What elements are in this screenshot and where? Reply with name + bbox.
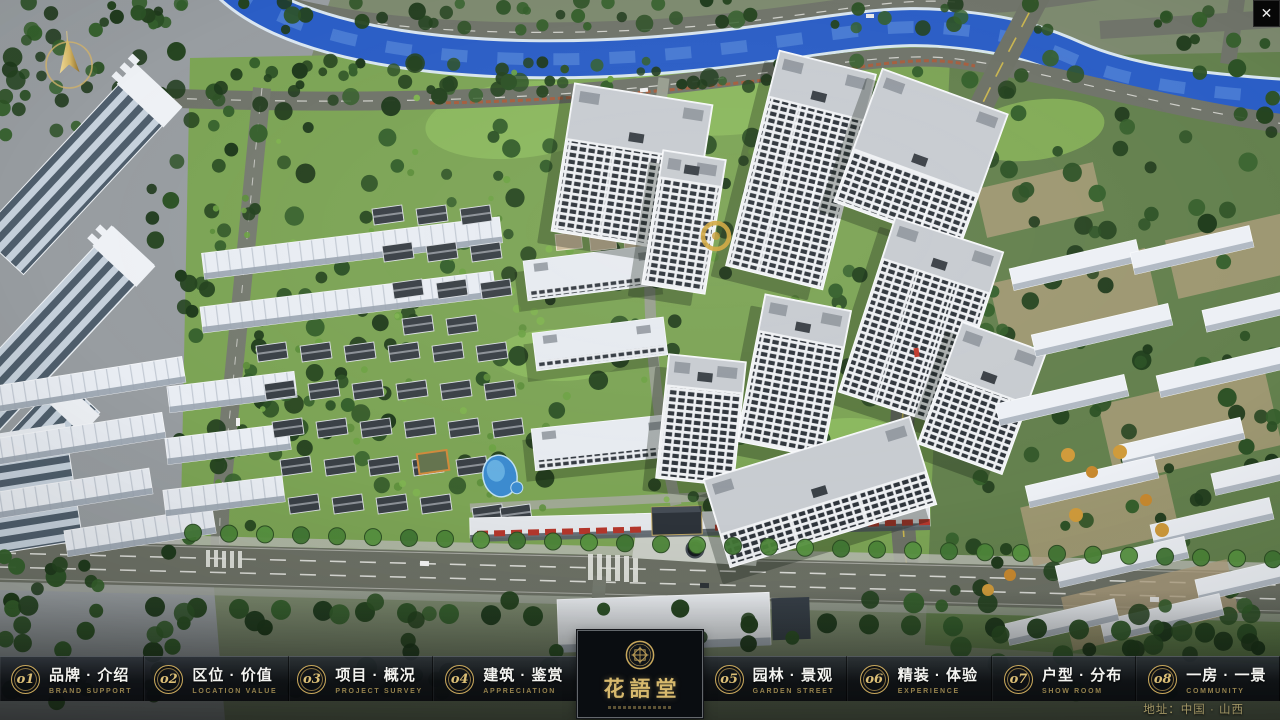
nav-item-brand-intro[interactable]: o1 品牌 · 介绍BRAND SUPPORT [0, 656, 144, 701]
nav-label-en: BRAND SUPPORT [49, 688, 132, 695]
logo-subtext-line [608, 706, 672, 709]
nav-number-badge: o1 [11, 665, 40, 694]
nav-number: o2 [160, 672, 178, 687]
nav-label-en: SHOW ROOM [1042, 688, 1103, 695]
nav-item-location-value[interactable]: o2 区位 · 价值LOCATION VALUE [144, 656, 288, 701]
close-button[interactable]: ✕ [1253, 0, 1280, 27]
garden-pavilion [417, 450, 449, 474]
nav-item-floorplans[interactable]: o7 户型 · 分布SHOW ROOM [992, 656, 1136, 701]
nav-number: o1 [17, 672, 35, 687]
aerial-masterplan-render [0, 0, 1280, 720]
seal-icon [625, 640, 655, 670]
nav-number: o3 [303, 672, 321, 687]
nav-item-landscape[interactable]: o5 园林 · 景观GARDEN STREET [703, 656, 847, 701]
nav-number: o6 [865, 672, 883, 687]
nav-label-en: APPRECIATION [483, 688, 556, 695]
nav-item-project-overview[interactable]: o3 项目 · 概况PROJECT SURVEY [289, 656, 433, 701]
nav-label-zh: 建筑 · 鉴赏 [483, 664, 563, 685]
nav-label-zh: 区位 · 价值 [192, 664, 272, 685]
nav-label-zh: 园林 · 景观 [753, 664, 833, 685]
nav-label-zh: 精装 · 体验 [898, 664, 978, 685]
close-icon: ✕ [1261, 7, 1273, 21]
nav-item-interior-experience[interactable]: o6 精装 · 体验EXPERIENCE [847, 656, 991, 701]
nav-number-badge: o3 [297, 665, 326, 694]
nav-number-badge: o7 [1004, 665, 1033, 694]
nav-label-zh: 项目 · 概况 [335, 664, 415, 685]
nav-number: o7 [1010, 672, 1028, 687]
nav-label-en: PROJECT SURVEY [335, 688, 422, 695]
sales-presentation-screen: ✕ o1 品牌 · 介绍BRAND SUPPORT o2 区位 · 价值LOCA… [0, 0, 1280, 720]
nav-group-left: o1 品牌 · 介绍BRAND SUPPORT o2 区位 · 价值LOCATI… [0, 656, 577, 701]
nav-number-badge: o8 [1148, 665, 1177, 694]
nav-label-en: EXPERIENCE [898, 688, 960, 695]
logo-panel[interactable]: 花語堂 [577, 630, 703, 718]
nav-label-zh: 一房 · 一景 [1186, 664, 1266, 685]
nav-group-right: o5 园林 · 景观GARDEN STREET o6 精装 · 体验EXPERI… [703, 656, 1280, 701]
nav-number: o8 [1154, 672, 1172, 687]
nav-number: o5 [720, 672, 738, 687]
nav-label-en: COMMUNITY [1186, 688, 1244, 695]
nav-number-badge: o2 [154, 665, 183, 694]
nav-label-zh: 户型 · 分布 [1042, 664, 1122, 685]
nav-label-zh: 品牌 · 介绍 [49, 664, 129, 685]
bottom-navbar: o1 品牌 · 介绍BRAND SUPPORT o2 区位 · 价值LOCATI… [0, 656, 1280, 701]
address-text: 地址：中国 · 山西 [1143, 701, 1244, 717]
nav-item-room-view[interactable]: o8 一房 · 一景COMMUNITY [1136, 656, 1280, 701]
nav-label-en: GARDEN STREET [753, 688, 835, 695]
logo-title: 花語堂 [599, 673, 682, 703]
nav-number-badge: o5 [715, 665, 744, 694]
compass-icon [40, 28, 98, 96]
nav-label-en: LOCATION VALUE [192, 688, 277, 695]
nav-number-badge: o4 [445, 665, 474, 694]
nav-number: o4 [451, 672, 469, 687]
nav-number-badge: o6 [860, 665, 889, 694]
nav-item-architecture[interactable]: o4 建筑 · 鉴赏APPRECIATION [433, 656, 577, 701]
